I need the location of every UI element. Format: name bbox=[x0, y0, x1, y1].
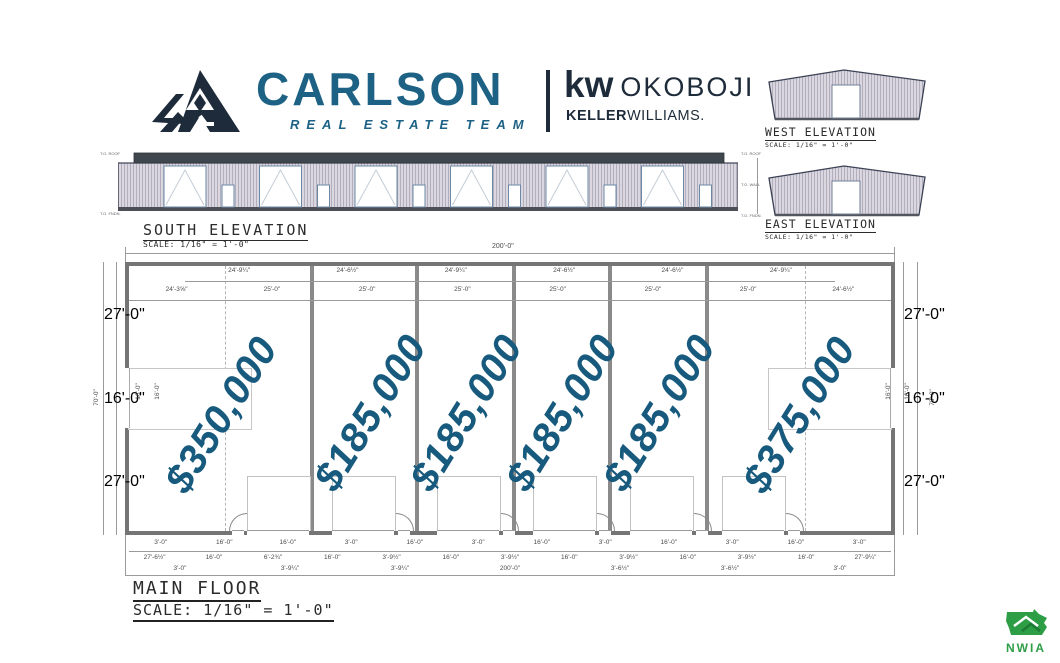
garage-door-opening bbox=[332, 530, 394, 535]
dim-label: 27'-0" bbox=[904, 430, 945, 535]
east-elevation-scale: SCALE: 1/16" = 1'-0" bbox=[765, 233, 853, 241]
dim-label: 3'-0" bbox=[125, 565, 235, 572]
dim-label: 24'-6½" bbox=[293, 267, 401, 274]
east-elevation-title: EAST ELEVATION bbox=[765, 217, 876, 231]
dim-label: 16'-0" bbox=[658, 554, 717, 561]
dim-label: 24'-6½" bbox=[618, 267, 726, 274]
dim-label: 27'-0" bbox=[104, 430, 145, 535]
door-swing-arc bbox=[694, 513, 712, 531]
dim-label: 3'-0" bbox=[828, 539, 892, 546]
kw-sub-rest: WILLIAMS. bbox=[627, 108, 705, 124]
dim-line bbox=[129, 300, 891, 301]
flyer-page: CARLSON REAL ESTATE TEAM kw OKOBOJI KELL… bbox=[0, 0, 1060, 663]
door-swing-arc bbox=[229, 513, 247, 531]
dim-label: 25'-0" bbox=[415, 286, 510, 293]
dim-label: 200'-0" bbox=[455, 565, 565, 572]
main-floor-title: MAIN FLOOR bbox=[133, 578, 261, 602]
man-door-opening bbox=[599, 530, 611, 535]
dim-label: 6'-2¾" bbox=[243, 554, 302, 561]
man-door-opening bbox=[232, 530, 244, 535]
kw-mark: kw bbox=[564, 70, 613, 100]
overall-width-label: 200'-0" bbox=[492, 243, 514, 250]
dim-label: 3'-9½" bbox=[480, 554, 539, 561]
dim-label: 24'-9¼" bbox=[402, 267, 510, 274]
nwia-logo-icon bbox=[1004, 608, 1050, 640]
dim-label: 16'-0" bbox=[193, 539, 257, 546]
garage-stall bbox=[247, 476, 311, 531]
unit-partition-wall bbox=[705, 266, 709, 531]
garage-door-opening bbox=[630, 530, 692, 535]
dim-label: 16'-0" bbox=[764, 539, 828, 546]
kw-sub-bold: KELLER bbox=[566, 108, 627, 124]
south-elevation-scale: SCALE: 1/16" = 1'-0" bbox=[143, 240, 249, 249]
kw-market: OKOBOJI bbox=[620, 75, 754, 99]
dim-label: 16'-0" bbox=[540, 554, 599, 561]
dim-label: 24'-9¼" bbox=[185, 267, 293, 274]
brand-tagline: REAL ESTATE TEAM bbox=[290, 117, 531, 132]
dim-label: 3'-9½" bbox=[362, 554, 421, 561]
garage-door-opening bbox=[247, 530, 309, 535]
dim-label: 27'-0" bbox=[104, 262, 145, 367]
dim-label: 3'-0" bbox=[785, 565, 895, 572]
east-elevation-drawing bbox=[766, 163, 928, 221]
south-elevation-left-markers: T.O. ROOF T.O. FNDN. bbox=[100, 152, 121, 216]
dim-label: 16'-0" bbox=[777, 554, 836, 561]
dim-label: 16'-0" bbox=[135, 383, 142, 400]
dim-label: 3'-9¼" bbox=[235, 565, 345, 572]
man-door-opening bbox=[398, 530, 410, 535]
dim-label: 25'-0" bbox=[510, 286, 605, 293]
south-elevation-drawing bbox=[118, 150, 738, 220]
garage-door-opening bbox=[533, 530, 595, 535]
dim-label: 24'-6½" bbox=[796, 286, 891, 293]
dim-label: 27'-6½" bbox=[125, 554, 184, 561]
unit-partition-wall bbox=[608, 266, 612, 531]
dim-label: 3'-0" bbox=[574, 539, 638, 546]
unit-partition-wall bbox=[415, 266, 419, 531]
dim-label: 3'-0" bbox=[320, 539, 384, 546]
south-elevation-right-markers: T.O. ROOF T.O. WALL T.O. FNDN. bbox=[741, 152, 762, 218]
door-swing-arc bbox=[396, 513, 414, 531]
dim-label: 16'-0" bbox=[153, 383, 160, 400]
door-swing-arc bbox=[597, 513, 615, 531]
main-floor-scale: SCALE: 1/16" = 1'-0" bbox=[133, 601, 334, 622]
dim-label: 16'-0" bbox=[637, 539, 701, 546]
man-door-opening bbox=[696, 530, 708, 535]
bottom-dim-row-3: 3'-0"3'-9¼"3'-9¼"200'-0"3'-6½"3'-6½"3'-0… bbox=[125, 565, 895, 572]
dim-label: 16'-0" bbox=[383, 539, 447, 546]
dim-label: 25'-0" bbox=[701, 286, 796, 293]
man-door-opening bbox=[503, 530, 515, 535]
dim-line bbox=[129, 551, 891, 552]
right-inner-dims: 16'-0"16'-0" bbox=[880, 388, 915, 395]
kw-okoboji-lockup: kw OKOBOJI bbox=[564, 70, 754, 100]
brand-name: CARLSON bbox=[256, 62, 504, 116]
bottom-dim-row-1: 3'-0"16'-0"16'-0"3'-0"16'-0"3'-0"16'-0"3… bbox=[129, 539, 891, 546]
dim-label: 3'-6½" bbox=[675, 565, 785, 572]
left-overall-depth: 70'-0" bbox=[93, 389, 100, 406]
dim-label: 3'-0" bbox=[701, 539, 765, 546]
dim-label: 27'-0" bbox=[904, 262, 945, 367]
bottom-dim-row-2: 27'-6½"16'-0"6'-2¾"16'-0"3'-9½"16'-0"3'-… bbox=[125, 554, 895, 561]
dim-label: 25'-0" bbox=[224, 286, 319, 293]
dim-label: 27'-9¼" bbox=[836, 554, 895, 561]
dim-label: 16'-0" bbox=[510, 539, 574, 546]
dim-line bbox=[185, 281, 835, 282]
west-elevation-scale: SCALE: 1/16" = 1'-0" bbox=[765, 141, 853, 149]
dim-label: 3'-9¼" bbox=[345, 565, 455, 572]
left-inner-dims: 16'-0"16'-0" bbox=[130, 388, 165, 395]
man-door-opening bbox=[788, 530, 800, 535]
dim-label: 25'-0" bbox=[320, 286, 415, 293]
overall-width-dim-line bbox=[125, 253, 895, 254]
south-elevation-title: SOUTH ELEVATION bbox=[143, 221, 308, 239]
dim-label: 3'-0" bbox=[129, 539, 193, 546]
top-dim-row-1: 24'-9¼"24'-6½"24'-9¼"24'-6½"24'-6½"24'-9… bbox=[185, 267, 835, 274]
dim-label: 3'-6½" bbox=[565, 565, 675, 572]
dim-tick bbox=[125, 535, 126, 575]
garage-door-opening bbox=[437, 530, 499, 535]
dim-tick bbox=[894, 247, 895, 262]
nwia-logo-text: NWIA bbox=[1006, 641, 1046, 655]
west-elevation-drawing bbox=[766, 67, 928, 125]
dim-tick bbox=[894, 535, 895, 575]
dim-tick bbox=[125, 247, 126, 262]
west-elevation-title: WEST ELEVATION bbox=[765, 125, 876, 139]
door-swing-arc bbox=[786, 513, 804, 531]
dim-label: 16'-0" bbox=[421, 554, 480, 561]
dim-label: 25'-0" bbox=[605, 286, 700, 293]
brand-divider bbox=[546, 70, 550, 132]
dim-label: 24'-6½" bbox=[510, 267, 618, 274]
south-elevation-height-dim-line bbox=[757, 158, 758, 214]
unit-partition-wall bbox=[512, 266, 516, 531]
overall-bottom-dim-line bbox=[125, 575, 895, 576]
carlson-mountain-logo-icon bbox=[148, 66, 252, 138]
keller-williams-label: KELLERWILLIAMS. bbox=[566, 108, 705, 124]
garage-door-opening bbox=[722, 530, 784, 535]
dim-label: 16'-0" bbox=[303, 554, 362, 561]
top-dim-row-2: 24'-3⅝"25'-0"25'-0"25'-0"25'-0"25'-0"25'… bbox=[129, 286, 891, 293]
dim-label: 3'-0" bbox=[447, 539, 511, 546]
dim-label: 16'-0" bbox=[184, 554, 243, 561]
dim-label: 16'-0" bbox=[256, 539, 320, 546]
door-swing-arc bbox=[501, 513, 519, 531]
dim-label: 3'-9½" bbox=[599, 554, 658, 561]
dim-label: 16'-0" bbox=[885, 383, 892, 400]
dim-label: 3'-9½" bbox=[717, 554, 776, 561]
dim-label: 24'-9¼" bbox=[727, 267, 835, 274]
dim-label: 16'-0" bbox=[903, 383, 910, 400]
